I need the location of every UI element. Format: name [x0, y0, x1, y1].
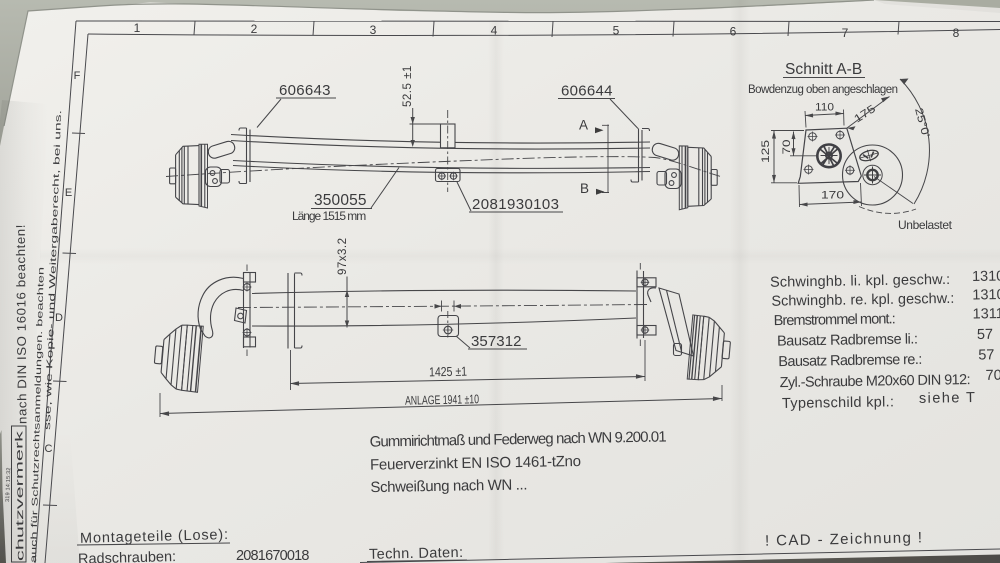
- svg-text:Bremstrommel mont.:: Bremstrommel mont.:: [774, 311, 896, 329]
- svg-text:Zyl.-Schraube M20x60 DIN 912:: Zyl.-Schraube M20x60 DIN 912:: [780, 372, 971, 391]
- svg-text:Radschrauben:: Radschrauben:: [78, 549, 176, 563]
- svg-text:Typenschild kpl.:: Typenschild kpl.:: [782, 394, 894, 412]
- svg-text:E: E: [65, 187, 72, 199]
- svg-text:319 14:15:32: 319 14:15:32: [5, 467, 12, 502]
- svg-text:1310: 1310: [972, 269, 1000, 286]
- svg-text:A: A: [579, 118, 588, 133]
- svg-text:ANLAGE 1941 ±10: ANLAGE 1941 ±10: [405, 392, 479, 408]
- svg-text:2: 2: [251, 22, 258, 36]
- svg-text:siehe T: siehe T: [919, 390, 975, 407]
- svg-text:C: C: [45, 443, 53, 455]
- svg-text:606644: 606644: [561, 83, 614, 100]
- svg-text:1425 ±1: 1425 ±1: [429, 364, 467, 380]
- svg-text:350055: 350055: [314, 192, 368, 209]
- svg-text:1310: 1310: [972, 287, 1000, 304]
- svg-text:2081670018: 2081670018: [236, 548, 310, 563]
- svg-text:6: 6: [730, 25, 737, 39]
- svg-text:357312: 357312: [471, 333, 523, 350]
- svg-text:3: 3: [370, 23, 377, 37]
- svg-text:110: 110: [815, 102, 834, 114]
- svg-text:7: 7: [842, 26, 849, 40]
- svg-text:57: 57: [977, 327, 993, 343]
- svg-text:D: D: [55, 312, 63, 324]
- svg-text:B: B: [580, 181, 589, 196]
- svg-text:1: 1: [134, 21, 141, 35]
- svg-text:2081930103: 2081930103: [472, 196, 560, 213]
- svg-text:Bowdenzug oben angeschlagen: Bowdenzug oben angeschlagen: [748, 84, 898, 96]
- svg-text:nach DIN ISO 16016 beachten!: nach DIN ISO 16016 beachten!: [14, 224, 30, 424]
- svg-text:8: 8: [953, 26, 960, 40]
- svg-text:Schwinghb. li. kpl. geschw.:: Schwinghb. li. kpl. geschw.:: [770, 272, 950, 291]
- svg-text:Schnitt A-B: Schnitt A-B: [785, 61, 863, 78]
- svg-text:Unbelastet: Unbelastet: [898, 218, 953, 232]
- svg-text:57: 57: [978, 347, 994, 363]
- svg-text:1311: 1311: [972, 306, 1000, 322]
- svg-text:Bausatz Radbremse re.:: Bausatz Radbremse re.:: [778, 352, 922, 370]
- svg-text:! CAD - Zeichnung !: ! CAD - Zeichnung !: [765, 529, 923, 549]
- svg-text:F: F: [74, 70, 81, 82]
- svg-text:Bausatz Radbremse li.:: Bausatz Radbremse li.:: [777, 331, 918, 349]
- svg-text:52.5 ±1: 52.5 ±1: [402, 65, 414, 107]
- svg-text:70: 70: [985, 368, 1000, 384]
- svg-text:Schwinghb. re. kpl. geschw.:: Schwinghb. re. kpl. geschw.:: [771, 291, 954, 310]
- svg-text:606643: 606643: [279, 82, 332, 99]
- svg-text:97x3.2: 97x3.2: [337, 237, 349, 275]
- svg-text:Länge 1515 mm: Länge 1515 mm: [292, 209, 367, 223]
- svg-text:125: 125: [760, 140, 772, 163]
- svg-text:Schweißung nach WN ...: Schweißung nach WN ...: [370, 476, 527, 496]
- svg-text:170: 170: [821, 190, 844, 202]
- svg-text:chutzvermerk: chutzvermerk: [13, 429, 26, 561]
- svg-text:70: 70: [781, 140, 793, 155]
- svg-text:5: 5: [613, 24, 620, 38]
- svg-text:4: 4: [491, 24, 498, 38]
